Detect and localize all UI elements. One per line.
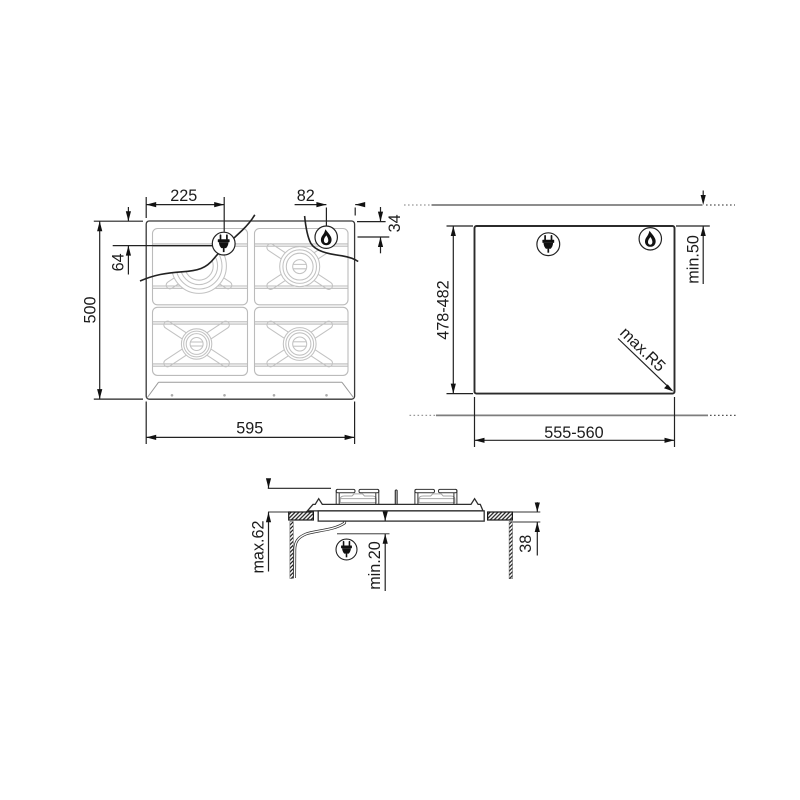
svg-text:500: 500 [81, 296, 99, 323]
svg-text:225: 225 [170, 187, 197, 205]
svg-text:34: 34 [386, 214, 404, 232]
svg-text:595: 595 [236, 420, 263, 438]
svg-text:min.50: min.50 [684, 235, 702, 284]
svg-text:478-482: 478-482 [435, 280, 453, 339]
svg-text:64: 64 [110, 253, 128, 271]
svg-text:max.62: max.62 [249, 520, 267, 573]
svg-text:555-560: 555-560 [544, 424, 603, 442]
svg-text:38: 38 [517, 535, 535, 553]
svg-text:min.20: min.20 [366, 541, 384, 590]
svg-text:82: 82 [297, 187, 315, 205]
